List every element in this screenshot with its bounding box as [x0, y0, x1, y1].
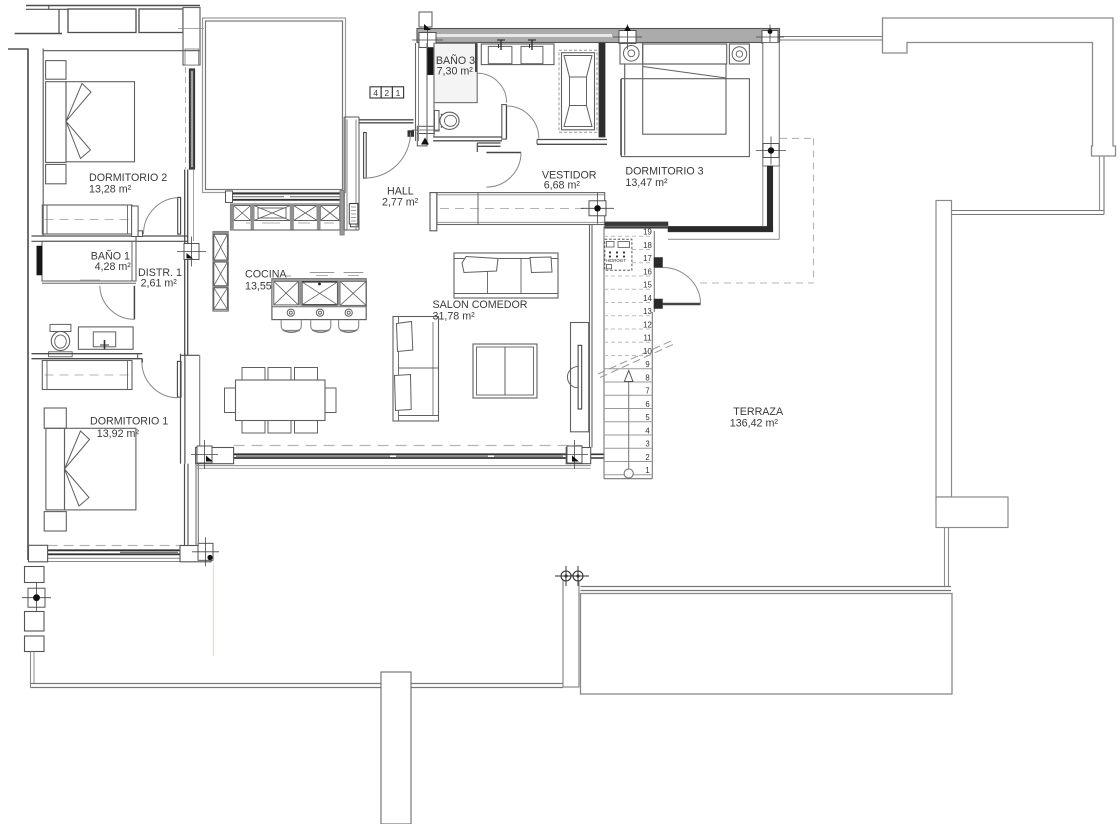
svg-text:TERRAZA: TERRAZA [733, 406, 784, 418]
svg-text:16: 16 [643, 267, 652, 276]
svg-text:HIDROKIT: HIDROKIT [606, 258, 626, 263]
svg-text:14: 14 [643, 294, 652, 303]
svg-text:2,61 m²: 2,61 m² [141, 278, 178, 290]
svg-text:11: 11 [643, 334, 651, 343]
svg-text:1: 1 [645, 466, 649, 475]
svg-text:4: 4 [645, 426, 650, 435]
svg-text:13,55: 13,55 [245, 281, 272, 293]
svg-text:7: 7 [645, 387, 649, 396]
svg-text:1: 1 [396, 88, 401, 98]
svg-text:SALON COMEDOR: SALON COMEDOR [433, 299, 528, 311]
svg-text:6: 6 [645, 400, 649, 409]
svg-text:4,28 m²: 4,28 m² [95, 261, 132, 273]
svg-text:13: 13 [643, 307, 652, 316]
svg-text:7,30 m²: 7,30 m² [437, 65, 474, 77]
svg-text:2: 2 [384, 88, 389, 98]
svg-text:6,68 m²: 6,68 m² [544, 180, 581, 192]
svg-text:13,28 m²: 13,28 m² [89, 184, 132, 196]
svg-text:5: 5 [645, 413, 650, 422]
svg-text:4: 4 [373, 88, 378, 98]
svg-text:2: 2 [645, 453, 649, 462]
svg-text:19: 19 [643, 228, 652, 237]
svg-text:3: 3 [645, 440, 649, 449]
svg-text:2,77 m²: 2,77 m² [382, 197, 419, 209]
svg-text:13,47 m²: 13,47 m² [625, 177, 668, 189]
svg-text:15: 15 [643, 281, 652, 290]
svg-text:9: 9 [645, 360, 649, 369]
svg-text:DORMITORIO 3: DORMITORIO 3 [625, 165, 703, 177]
svg-text:DORMITORIO 1: DORMITORIO 1 [90, 416, 168, 428]
svg-text:136,42 m²: 136,42 m² [730, 418, 779, 430]
svg-text:DORMITORIO 2: DORMITORIO 2 [89, 172, 167, 184]
svg-text:8: 8 [645, 373, 649, 382]
svg-text:13,92 m²: 13,92 m² [97, 428, 140, 440]
svg-text:18: 18 [643, 241, 652, 250]
svg-text:17: 17 [643, 254, 652, 263]
svg-text:12: 12 [643, 320, 652, 329]
